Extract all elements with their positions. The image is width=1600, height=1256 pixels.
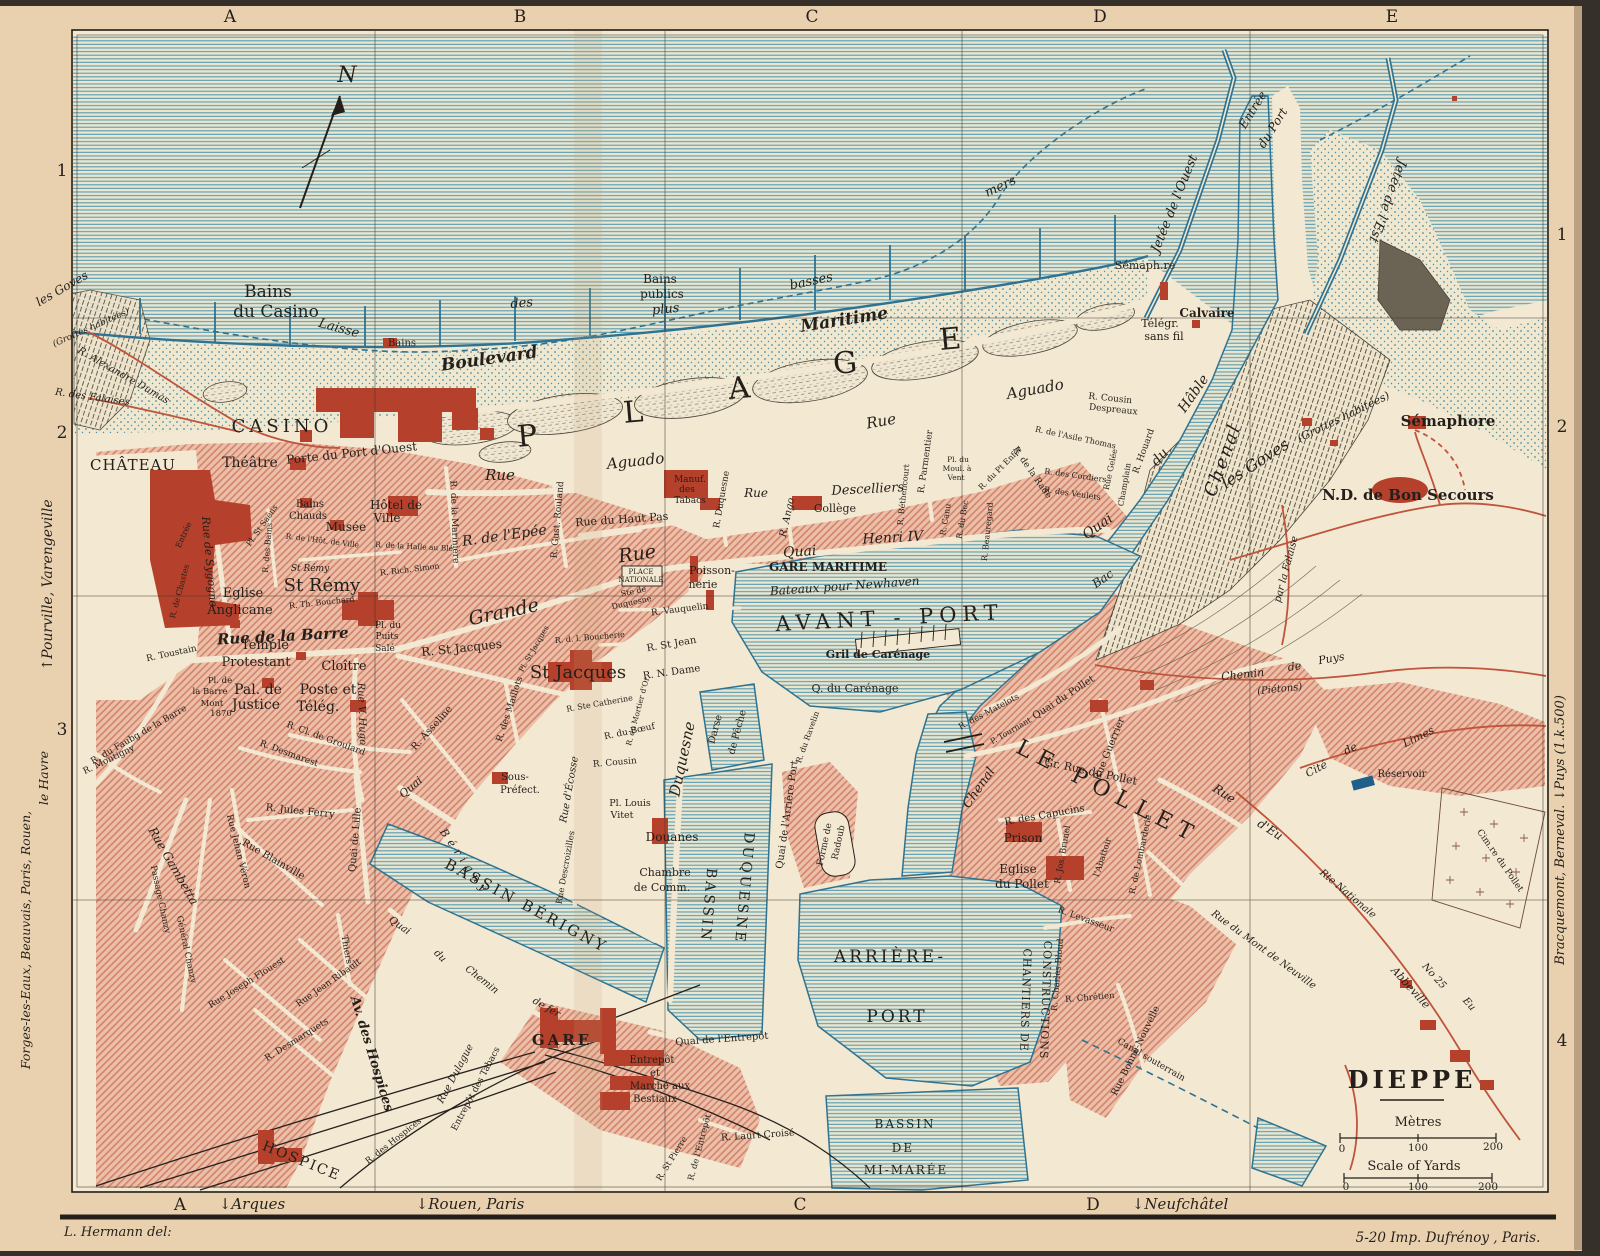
map-label-t-l-gr: Télégr. [1141, 317, 1179, 330]
map-label-arri-re: ARRIÈRE- [833, 946, 946, 967]
map-label-henri-iv: Henri IV [861, 528, 925, 547]
map-label-pl-louis: Pl. Louis [609, 798, 651, 809]
map-label-port: PORT [866, 1007, 927, 1027]
map-label-pr-fect: Préfect. [500, 785, 540, 796]
map-label-ch-teau: CHÂTEAU [90, 456, 176, 474]
grid-number-right-1: 1 [1557, 225, 1568, 245]
vintage-map-dieppe: LaissedesplusbassesmersJetée de l'OuestE… [0, 0, 1600, 1256]
map-label-r-servoir: Réservoir [1378, 769, 1427, 780]
map-label-nationale: NATIONALE [619, 576, 664, 584]
map-label-march-aux: Marché aux [630, 1081, 691, 1092]
map-label-justice: Justice [230, 697, 280, 713]
fold-crease [574, 31, 602, 1191]
map-label-pl-du: Pl. du [375, 621, 401, 631]
map-label-th-tre: Théâtre [222, 455, 278, 471]
map-title: DIEPPE [1348, 1065, 1477, 1094]
map-label-clo-tre: Cloître [321, 659, 367, 674]
map-label-st-jacques: St Jacques [530, 662, 626, 683]
map-label-e: E [938, 321, 963, 358]
map-label-rue-v-hugo: Rue V. Hugo [355, 681, 368, 745]
map-label-de-comm: de Comm. [634, 881, 690, 894]
map-label-du-pollet: du Pollet [995, 877, 1049, 891]
metres-label: Mètres [1395, 1115, 1442, 1130]
note-forges: Forges-les-Eaux, Beauvais, Paris, Rouen, [18, 811, 33, 1070]
printer-imprint: 5-20 Imp. Dufrénoy , Paris. [1356, 1230, 1541, 1246]
yards-tick-100: 100 [1408, 1181, 1428, 1193]
map-label-n-d-de-bon-secours: N.D. de Bon Secours [1322, 486, 1494, 504]
cartographer-credit: L. Hermann del: [63, 1225, 172, 1240]
map-label-mus-e: Musée [326, 520, 366, 534]
map-label-mi-mar-e: MI-MARÉE [864, 1162, 949, 1177]
map-label-tabacs: Tabacs [674, 496, 706, 506]
map-label-pl-de: Pl. de [208, 676, 232, 686]
map-label-sous: Sous- [501, 772, 529, 783]
metres-tick-200: 200 [1483, 1141, 1503, 1153]
map-label-mont: Mont [201, 699, 224, 709]
grid-letter-top-D: D [1093, 7, 1107, 27]
map-label-q-du-car-nage: Q. du Carénage [811, 682, 898, 695]
map-label-l: L [622, 394, 645, 431]
map-label-du-casino: du Casino [233, 302, 319, 322]
map-label-ville: Ville [372, 511, 400, 525]
map-label-temple: Temple [241, 638, 289, 653]
map-label-s-maph-re: Sémaph.re [1115, 259, 1175, 272]
grid-letter-bottom-C: C [793, 1195, 806, 1215]
map-label-chauds: Chauds [289, 511, 327, 522]
map-label-vitet: Vitet [610, 810, 634, 821]
grid-number-left-1: 1 [57, 161, 68, 181]
map-label-calvaire: Calvaire [1179, 306, 1235, 320]
map-label-vent: Vent [946, 473, 964, 482]
map-label-bains: Bains [643, 272, 677, 286]
grid-number-right-2: 2 [1557, 417, 1568, 437]
map-label-nerie: nerie [689, 578, 718, 591]
map-label-1870: 1870 [210, 709, 232, 719]
map-label-st-r-my: St Rémy [291, 563, 330, 574]
map-label-rue: Rue [743, 486, 768, 500]
calvaire-mark [1192, 320, 1200, 328]
grid-number-left-2: 2 [57, 423, 68, 443]
map-label-manuf: Manuf. [674, 475, 706, 485]
metres-tick-0: 0 [1339, 1143, 1346, 1155]
yards-label: Scale of Yards [1367, 1159, 1460, 1174]
metres-tick-100: 100 [1408, 1142, 1428, 1154]
map-label-douanes: Douanes [646, 830, 699, 844]
map-label-gare: GARE [532, 1031, 592, 1049]
map-label-poste-et: Poste et [300, 682, 357, 698]
note-bracquemont: Bracquemont, Berneval. ↓Puys (1.k.500) [1553, 695, 1568, 966]
grid-letter-top-A: A [223, 7, 237, 27]
grid-letter-top-C: C [805, 7, 818, 27]
map-label-et: et [650, 1068, 660, 1079]
map-label-t-l-g: Télég. [297, 699, 340, 715]
map-label-place: PLACE [629, 568, 654, 576]
map-label-plus: plus [651, 301, 680, 318]
map-label-p: P [516, 418, 539, 455]
map-label-bestiaux: Bestiaux [633, 1094, 677, 1105]
map-label-g: G [832, 345, 859, 382]
map-label-de: de [1287, 659, 1303, 674]
map-label-st-r-my: St Rémy [284, 575, 362, 596]
map-label-rue: Rue [484, 466, 515, 484]
map-label-moul: Moul. à [943, 464, 972, 473]
yards-tick-0: 0 [1343, 1181, 1350, 1193]
map-label-gare-maritime: GARE MARITIME [769, 560, 887, 574]
grid-number-left-3: 3 [57, 720, 68, 740]
map-label-gril-de-car-nage: Gril de Carénage [826, 648, 930, 661]
map-label-poisson: Poisson- [689, 564, 735, 577]
map-label-coll-ge: Collège [814, 502, 856, 515]
map-label-entrep-t: Entrepôt [630, 1055, 675, 1066]
map-label-bains: Bains [244, 282, 292, 302]
map-label-sal: Salé [375, 643, 395, 654]
map-label-prison: Prison [1004, 831, 1043, 845]
yards-tick-200: 200 [1478, 1181, 1498, 1193]
map-label-s-maphore: Sémaphore [1401, 412, 1496, 430]
map-label-de: DE [892, 1141, 914, 1155]
compass-north-label: N [336, 63, 357, 88]
note-arques: ↓Arques [219, 1195, 286, 1213]
map-label-la-barre: la Barre [193, 687, 228, 697]
note-pourville: ↑Pourville, Varengeville [40, 499, 56, 670]
grid-letter-bottom-A: A [173, 1195, 187, 1215]
note-neufchatel: ↓Neufchâtel [1132, 1195, 1229, 1213]
map-label-bains: Bains [296, 499, 324, 510]
grid-number-right-4: 4 [1557, 1031, 1568, 1051]
map-label-a: A [726, 370, 752, 407]
note-havre: le Havre [36, 751, 51, 805]
map-label-sans-fil: sans fil [1144, 330, 1184, 343]
map-label-protestant: Protestant [222, 655, 292, 670]
note-rouen: ↓Rouen, Paris [416, 1195, 525, 1213]
map-label-des: des [510, 295, 534, 312]
map-label-casino: CASINO [232, 416, 333, 437]
grid-letter-top-B: B [514, 7, 527, 27]
map-label-des: des [679, 485, 695, 495]
grid-letter-bottom-D: D [1086, 1195, 1100, 1215]
map-label-pal-de: Pal. de [234, 682, 282, 698]
map-label-h-tel-de: Hôtel de [370, 498, 422, 512]
map-label-chambre: Chambre [639, 866, 690, 879]
map-label-bains: Bains [388, 338, 416, 349]
map-label-quai: Quai [783, 543, 817, 561]
map-label-publics: publics [640, 287, 684, 301]
map-label-pl-du: Pl. du [947, 455, 969, 464]
map-label-eglise: Eglise [999, 862, 1036, 876]
map-label-bassin: BASSIN [875, 1117, 936, 1131]
map-label-puits: Puits [376, 632, 399, 642]
map-svg: LaissedesplusbassesmersJetée de l'OuestE… [0, 0, 1600, 1256]
grid-letter-top-E: E [1386, 7, 1398, 27]
map-label-eglise: Eglise [223, 586, 264, 601]
